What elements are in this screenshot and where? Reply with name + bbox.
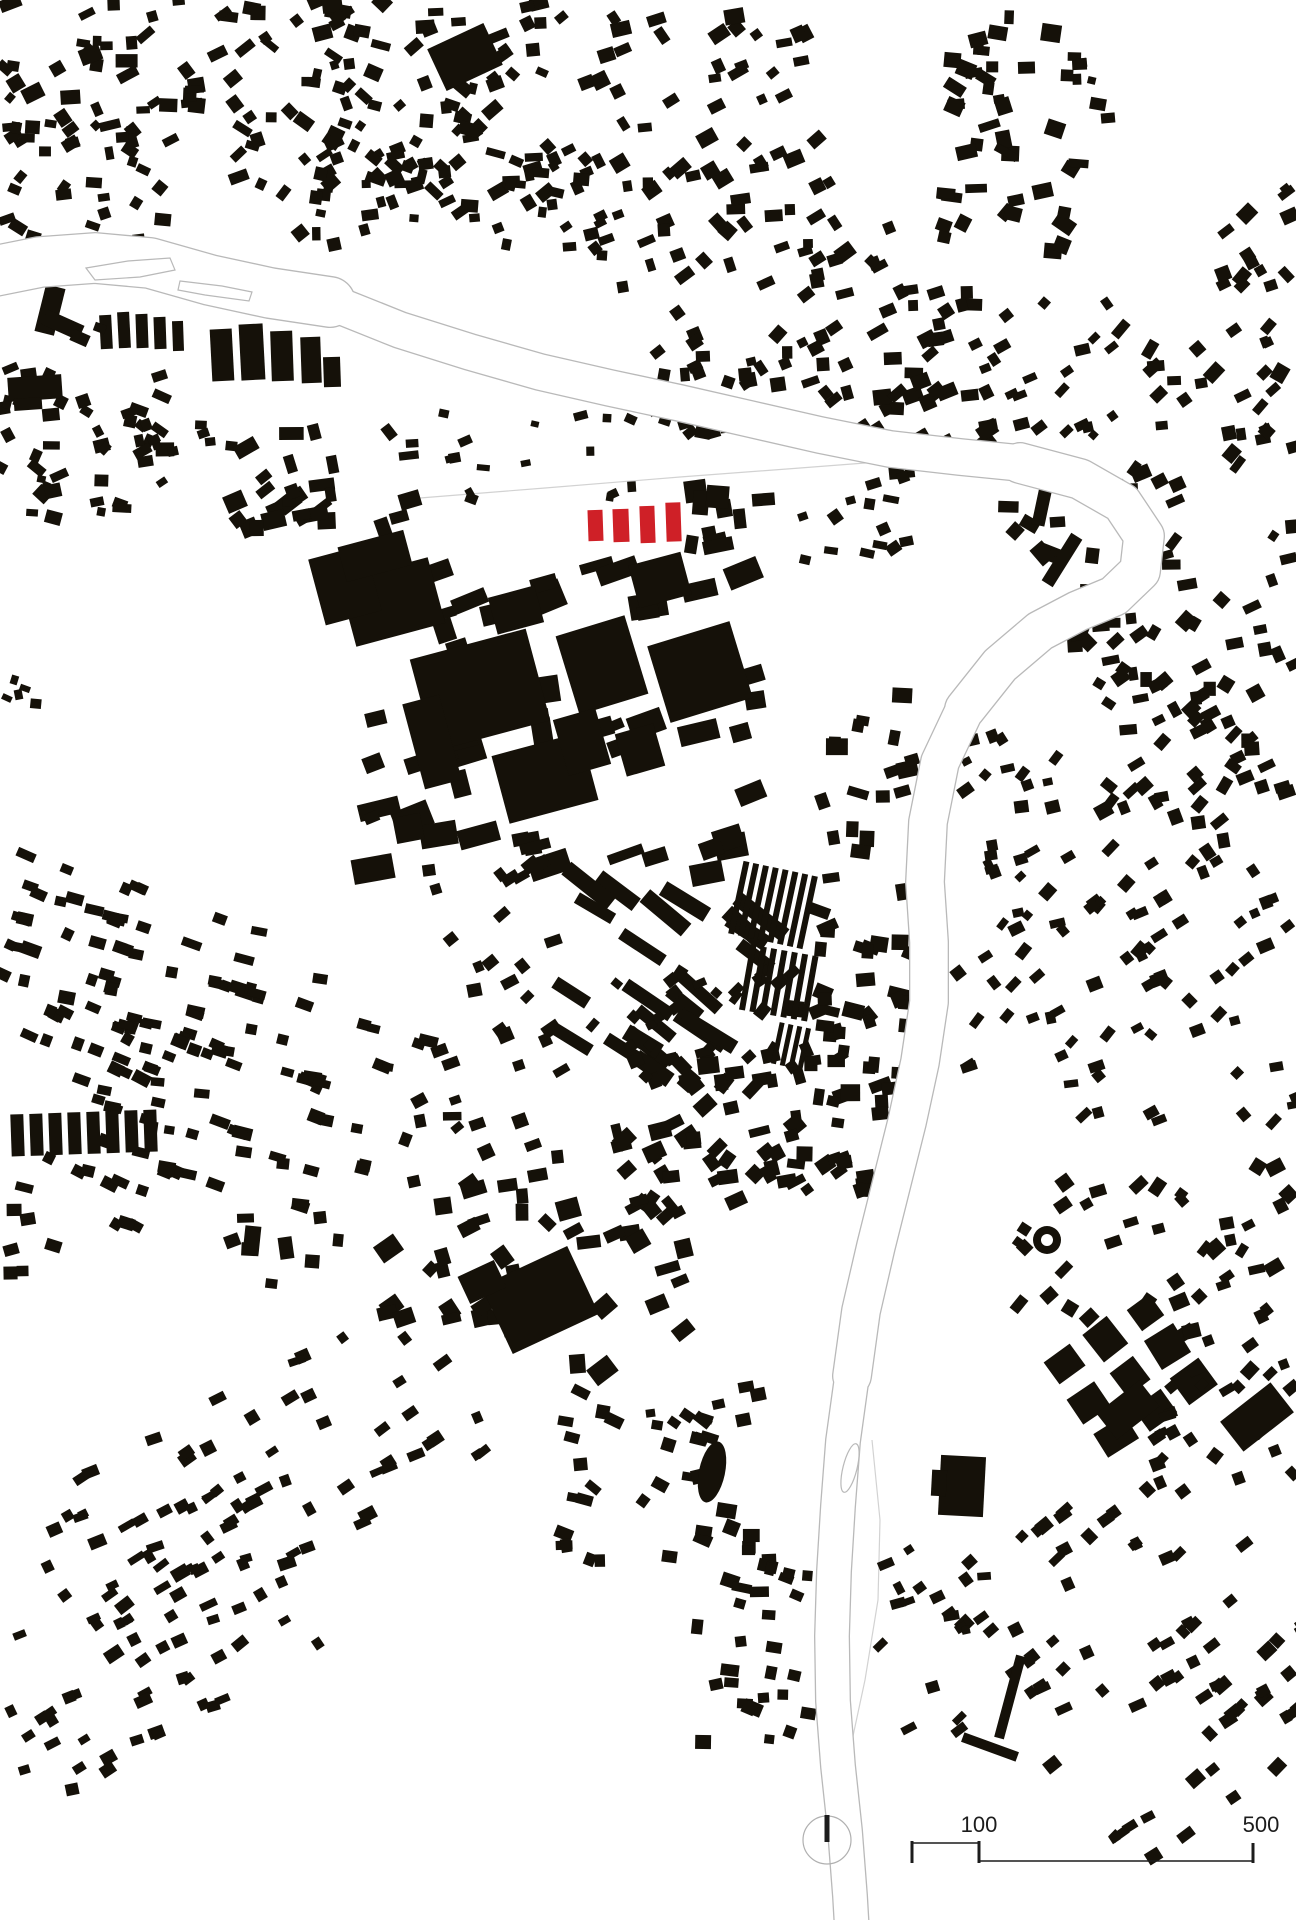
building xyxy=(275,1575,288,1589)
building xyxy=(554,10,569,24)
building xyxy=(576,1235,601,1250)
building xyxy=(223,1232,241,1249)
building xyxy=(1141,339,1159,360)
building xyxy=(756,275,775,290)
building xyxy=(793,55,810,67)
building xyxy=(1085,547,1100,564)
building xyxy=(1087,76,1097,85)
building xyxy=(1221,425,1237,441)
building xyxy=(1194,377,1207,389)
building xyxy=(500,974,519,991)
building xyxy=(707,98,726,115)
site-plan-page: 100 500 xyxy=(0,0,1296,1920)
building xyxy=(766,1073,778,1088)
building xyxy=(726,204,745,215)
building xyxy=(397,489,422,510)
building xyxy=(674,265,695,285)
building xyxy=(60,90,81,105)
building xyxy=(392,813,424,844)
building xyxy=(851,718,864,733)
building xyxy=(185,1128,199,1141)
building xyxy=(1146,624,1162,641)
building xyxy=(114,1595,135,1615)
building xyxy=(1217,675,1236,694)
building xyxy=(649,344,665,360)
building xyxy=(1253,624,1267,635)
building xyxy=(337,117,352,129)
building xyxy=(1086,976,1104,993)
building xyxy=(129,196,143,211)
building xyxy=(103,1644,125,1664)
building xyxy=(775,37,792,48)
building xyxy=(734,779,767,807)
building xyxy=(654,1260,680,1277)
building xyxy=(162,1050,177,1063)
building xyxy=(15,847,36,863)
building xyxy=(648,1120,673,1141)
landmark-building xyxy=(278,1236,295,1260)
highlighted-project-building xyxy=(587,510,603,542)
building xyxy=(1150,928,1168,943)
building xyxy=(433,1354,453,1372)
building xyxy=(573,1457,588,1471)
building xyxy=(785,204,796,215)
building xyxy=(1128,1697,1147,1712)
building xyxy=(1285,658,1296,672)
building xyxy=(493,906,511,923)
building xyxy=(154,213,171,227)
building xyxy=(313,1211,327,1224)
building xyxy=(151,1077,165,1087)
landmark-building xyxy=(994,1655,1026,1740)
building xyxy=(602,414,611,423)
building xyxy=(1101,839,1119,858)
building xyxy=(609,83,626,100)
building xyxy=(1100,296,1114,310)
building xyxy=(607,843,645,865)
building xyxy=(1172,913,1190,929)
building xyxy=(861,944,874,959)
building xyxy=(750,28,764,41)
building xyxy=(1101,696,1116,710)
building xyxy=(876,790,890,802)
building xyxy=(613,42,632,57)
building xyxy=(1055,1661,1071,1677)
building xyxy=(351,853,396,885)
building xyxy=(876,522,891,537)
building xyxy=(1005,976,1022,993)
building xyxy=(1225,1790,1241,1806)
building xyxy=(730,193,751,206)
building xyxy=(943,77,967,98)
building xyxy=(152,388,172,404)
building xyxy=(1248,1157,1267,1176)
building xyxy=(1080,1527,1098,1545)
building xyxy=(2,1242,19,1257)
building xyxy=(1046,1634,1060,1648)
building xyxy=(899,535,914,547)
river-water xyxy=(852,709,965,1376)
building xyxy=(1144,856,1159,870)
building xyxy=(1189,340,1207,358)
building xyxy=(591,153,606,170)
building xyxy=(18,974,30,988)
building xyxy=(929,1589,946,1604)
building xyxy=(742,1545,755,1555)
building xyxy=(796,337,808,349)
building xyxy=(1139,1481,1157,1499)
building xyxy=(429,883,442,896)
building xyxy=(351,1123,364,1134)
building xyxy=(562,242,576,252)
building xyxy=(136,106,150,114)
building xyxy=(135,1652,152,1668)
building xyxy=(135,920,151,934)
building xyxy=(1140,1810,1156,1824)
building xyxy=(1236,1106,1252,1122)
building xyxy=(900,1721,917,1735)
building xyxy=(3,1266,17,1279)
building xyxy=(315,209,326,218)
building xyxy=(289,13,304,28)
building xyxy=(299,1540,316,1554)
building xyxy=(468,1117,486,1132)
building xyxy=(112,503,131,513)
building xyxy=(926,285,945,300)
building xyxy=(765,1641,782,1654)
building xyxy=(546,199,557,211)
building xyxy=(303,1164,320,1178)
building xyxy=(606,492,615,501)
building xyxy=(200,1530,215,1545)
building xyxy=(156,1503,173,1518)
building xyxy=(369,1466,384,1478)
building xyxy=(723,1100,740,1115)
building xyxy=(831,1117,844,1128)
building xyxy=(129,1734,144,1747)
building xyxy=(18,1764,31,1775)
building xyxy=(253,1587,268,1602)
building xyxy=(551,1150,564,1164)
row-house-strip xyxy=(48,1113,62,1155)
building xyxy=(485,147,506,159)
building xyxy=(407,1175,421,1189)
building xyxy=(135,163,151,176)
building xyxy=(825,319,843,336)
building xyxy=(1053,1196,1073,1215)
building xyxy=(0,460,8,475)
building xyxy=(234,38,255,58)
building xyxy=(10,674,20,685)
building xyxy=(1230,1066,1244,1080)
building xyxy=(471,1411,484,1425)
building xyxy=(561,143,576,156)
building xyxy=(965,184,987,193)
building xyxy=(231,1601,247,1615)
building xyxy=(1007,1621,1024,1638)
building xyxy=(457,434,473,447)
building xyxy=(811,268,825,282)
building xyxy=(645,1409,655,1418)
building xyxy=(778,357,792,371)
building xyxy=(228,168,250,185)
building xyxy=(46,1521,64,1537)
building xyxy=(584,1479,601,1495)
building xyxy=(1269,1061,1284,1072)
building xyxy=(250,6,265,21)
landmark-building xyxy=(117,312,131,349)
building xyxy=(406,439,419,448)
row-house-strip xyxy=(10,1114,24,1156)
landmark-building xyxy=(239,323,266,380)
building xyxy=(71,1036,85,1051)
building xyxy=(597,233,614,246)
building xyxy=(1039,1286,1059,1305)
building xyxy=(1191,658,1211,675)
building xyxy=(206,1614,220,1625)
building xyxy=(597,250,608,261)
building xyxy=(525,153,543,162)
building xyxy=(477,1143,496,1162)
building xyxy=(1100,777,1118,794)
building xyxy=(575,1492,594,1507)
building xyxy=(44,119,57,128)
building xyxy=(96,507,106,517)
building xyxy=(827,215,842,232)
building xyxy=(185,85,204,93)
building xyxy=(281,1389,300,1406)
building xyxy=(29,448,43,463)
building xyxy=(128,948,144,961)
building xyxy=(312,973,328,985)
building xyxy=(801,375,820,388)
building xyxy=(1235,1243,1249,1259)
building xyxy=(583,227,600,242)
building xyxy=(679,1407,696,1423)
building xyxy=(399,450,420,461)
scale-label-100: 100 xyxy=(961,1812,998,1837)
building xyxy=(1089,1183,1108,1198)
building xyxy=(983,1622,1000,1638)
building xyxy=(244,1409,261,1426)
building xyxy=(677,718,721,747)
building xyxy=(1216,1279,1232,1291)
building xyxy=(756,93,768,105)
building xyxy=(711,1398,725,1410)
building xyxy=(1256,937,1275,954)
building xyxy=(750,1586,769,1597)
building xyxy=(516,1204,529,1221)
building xyxy=(1248,1263,1266,1275)
building xyxy=(723,7,745,25)
building xyxy=(616,1160,637,1180)
building xyxy=(846,821,859,837)
building xyxy=(978,950,994,964)
building xyxy=(316,1415,332,1430)
building xyxy=(1165,494,1185,509)
building xyxy=(15,1181,34,1194)
building xyxy=(44,1736,61,1751)
building xyxy=(986,61,998,72)
building xyxy=(371,0,393,13)
building xyxy=(968,337,983,351)
building xyxy=(343,58,355,70)
building xyxy=(72,1072,91,1087)
building xyxy=(616,280,629,293)
building xyxy=(908,300,918,311)
building xyxy=(822,872,840,884)
building xyxy=(586,1355,619,1386)
building xyxy=(1106,410,1118,422)
building xyxy=(1150,472,1168,489)
building xyxy=(135,25,155,44)
building xyxy=(133,1692,153,1709)
building xyxy=(332,1233,343,1247)
building xyxy=(1203,1637,1221,1654)
building xyxy=(1152,714,1166,727)
building xyxy=(764,209,783,222)
building xyxy=(642,1140,668,1163)
building xyxy=(145,1432,163,1447)
building xyxy=(1219,1216,1235,1230)
building xyxy=(1095,1683,1110,1698)
building xyxy=(882,221,896,236)
building xyxy=(283,454,298,474)
landmark-building xyxy=(153,317,166,349)
building xyxy=(156,476,169,488)
building xyxy=(762,1610,776,1620)
building xyxy=(1061,69,1074,81)
building xyxy=(1144,1847,1164,1866)
building xyxy=(706,485,730,509)
building xyxy=(159,98,178,112)
building xyxy=(729,722,752,743)
building xyxy=(146,10,159,23)
building xyxy=(311,1636,325,1650)
building xyxy=(538,1213,557,1232)
building xyxy=(374,1421,391,1437)
building xyxy=(300,1388,317,1404)
building xyxy=(116,54,138,67)
building xyxy=(1038,882,1057,902)
building xyxy=(1265,573,1278,588)
building xyxy=(10,121,22,134)
building xyxy=(1217,223,1235,239)
building xyxy=(736,215,753,233)
building xyxy=(298,152,311,165)
building xyxy=(385,194,399,210)
building xyxy=(116,132,129,143)
building xyxy=(60,927,74,942)
building xyxy=(212,912,228,926)
building xyxy=(1151,1223,1165,1235)
building xyxy=(1257,641,1272,657)
building xyxy=(450,1121,464,1135)
building xyxy=(775,88,793,104)
building xyxy=(797,511,808,521)
building xyxy=(337,1478,355,1495)
building xyxy=(1216,776,1234,796)
building xyxy=(1260,318,1277,336)
building xyxy=(26,509,38,517)
building xyxy=(409,135,423,149)
building xyxy=(973,1610,990,1625)
row-house-strip xyxy=(67,1112,81,1154)
building xyxy=(94,474,108,486)
building xyxy=(19,1212,36,1226)
building xyxy=(996,917,1009,931)
building xyxy=(223,69,243,89)
building xyxy=(695,127,719,149)
building xyxy=(1229,1015,1241,1026)
building xyxy=(54,896,67,908)
building xyxy=(695,252,713,270)
building xyxy=(1240,1360,1260,1380)
building xyxy=(211,1551,225,1564)
building xyxy=(999,1008,1014,1024)
landmark-building xyxy=(14,397,43,411)
building xyxy=(594,1554,605,1567)
building xyxy=(520,990,535,1005)
building xyxy=(1225,637,1244,651)
building xyxy=(312,227,321,240)
building xyxy=(555,1196,582,1221)
building xyxy=(527,1167,548,1182)
building xyxy=(1264,1157,1286,1177)
building xyxy=(847,785,870,800)
building xyxy=(404,37,424,57)
building xyxy=(1246,863,1261,878)
building xyxy=(275,184,291,201)
building xyxy=(524,1138,542,1152)
building xyxy=(662,1170,680,1184)
building xyxy=(151,179,168,196)
building xyxy=(255,481,275,500)
building xyxy=(1220,714,1235,729)
row-house-strip xyxy=(29,1113,43,1155)
building xyxy=(1133,776,1154,796)
building xyxy=(826,738,848,755)
building xyxy=(1167,701,1183,718)
building xyxy=(657,223,670,236)
landmark-building xyxy=(243,1225,262,1255)
building xyxy=(627,481,636,492)
building xyxy=(1225,962,1240,977)
building xyxy=(233,436,260,460)
building xyxy=(1004,10,1014,24)
building xyxy=(937,230,952,244)
building xyxy=(1010,1294,1029,1314)
building xyxy=(845,495,856,505)
building xyxy=(409,214,419,222)
building xyxy=(651,1476,670,1494)
building xyxy=(949,964,967,982)
building xyxy=(104,982,118,996)
building xyxy=(557,1415,574,1427)
building xyxy=(1037,296,1051,310)
building xyxy=(1013,417,1031,432)
building xyxy=(856,972,876,987)
building xyxy=(651,1420,663,1431)
building xyxy=(1087,1059,1105,1074)
building xyxy=(711,58,726,75)
building xyxy=(4,92,16,104)
building xyxy=(1242,599,1262,615)
building xyxy=(691,1619,704,1635)
building xyxy=(643,177,653,190)
building xyxy=(1007,193,1025,207)
building xyxy=(279,1474,292,1488)
